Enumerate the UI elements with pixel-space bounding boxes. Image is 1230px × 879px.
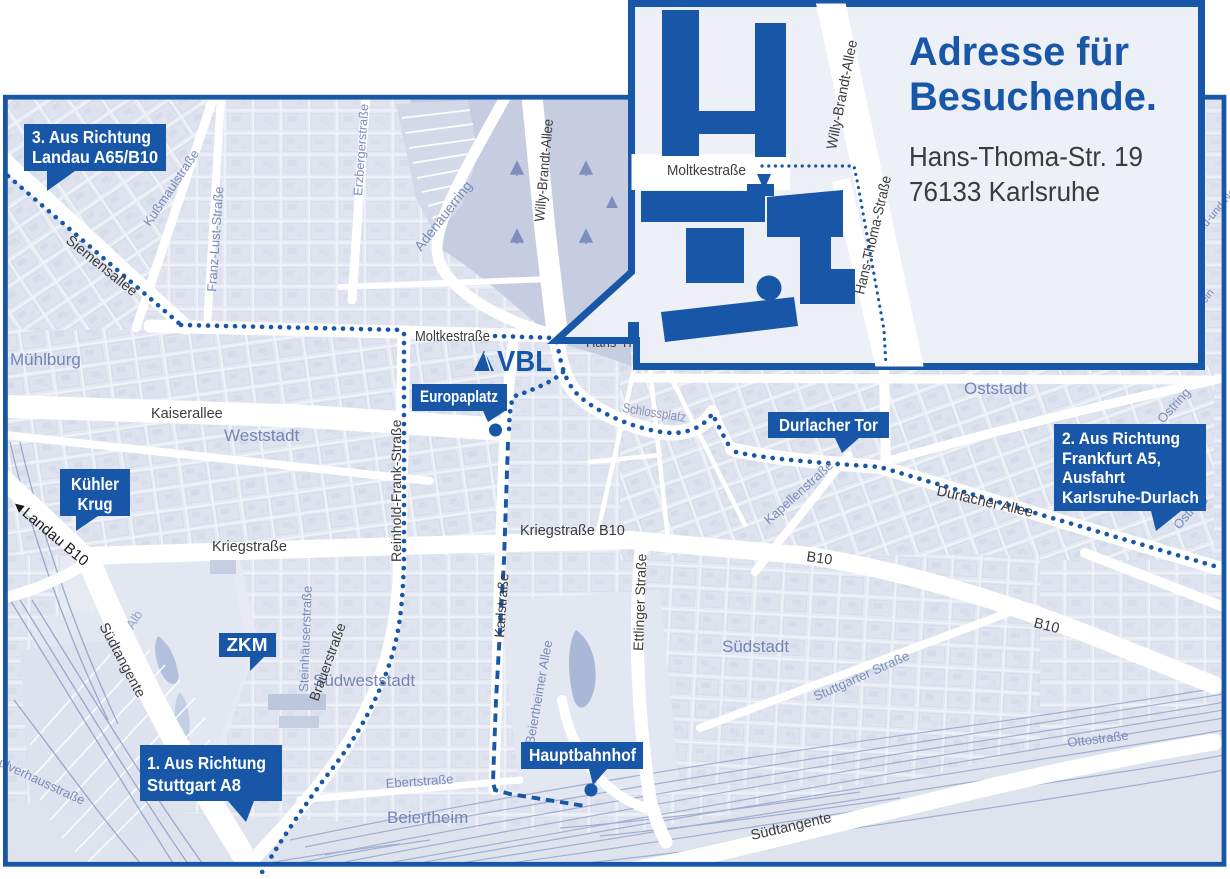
svg-text:ZKM: ZKM xyxy=(227,635,268,655)
svg-text:Stuttgart A8: Stuttgart A8 xyxy=(147,775,241,795)
svg-text:Reinhold-Frank-Straße: Reinhold-Frank-Straße xyxy=(388,419,404,562)
svg-text:Kaiserallee: Kaiserallee xyxy=(151,406,223,422)
svg-text:Südstadt: Südstadt xyxy=(722,637,789,656)
svg-text:Kriegstraße B10: Kriegstraße B10 xyxy=(520,523,625,539)
svg-text:Oststadt: Oststadt xyxy=(964,379,1028,398)
svg-text:Landau A65/B10: Landau A65/B10 xyxy=(32,147,158,167)
svg-text:Kriegstraße: Kriegstraße xyxy=(212,539,287,555)
svg-text:Krug: Krug xyxy=(78,494,113,514)
svg-text:Kühler: Kühler xyxy=(71,474,119,494)
svg-text:Hans-Thoma-Str. 19: Hans-Thoma-Str. 19 xyxy=(909,141,1143,172)
svg-text:3. Aus Richtung: 3. Aus Richtung xyxy=(32,127,151,147)
svg-text:Moltkestraße: Moltkestraße xyxy=(415,329,490,345)
svg-text:Besuchende.: Besuchende. xyxy=(909,75,1157,119)
svg-text:Durlacher Tor: Durlacher Tor xyxy=(779,415,878,435)
svg-text:Beiertheim: Beiertheim xyxy=(387,808,468,827)
svg-text:Europaplatz: Europaplatz xyxy=(420,388,498,406)
svg-text:Weststadt: Weststadt xyxy=(224,426,300,445)
svg-text:Mühlburg: Mühlburg xyxy=(10,350,81,369)
svg-text:Ettlinger Straße: Ettlinger Straße xyxy=(630,553,649,651)
svg-text:VBL: VBL xyxy=(497,346,552,378)
svg-text:Karlsruhe-Durlach: Karlsruhe-Durlach xyxy=(1062,488,1199,507)
svg-text:2. Aus Richtung: 2. Aus Richtung xyxy=(1062,429,1180,448)
svg-text:1. Aus Richtung: 1. Aus Richtung xyxy=(147,753,266,773)
svg-text:Ausfahrt: Ausfahrt xyxy=(1062,468,1125,487)
svg-text:Frankfurt A5,: Frankfurt A5, xyxy=(1062,449,1161,468)
svg-text:Moltkestraße: Moltkestraße xyxy=(667,163,746,179)
svg-text:Adresse für: Adresse für xyxy=(909,30,1129,74)
svg-text:Hauptbahnhof: Hauptbahnhof xyxy=(529,745,636,765)
svg-text:76133 Karlsruhe: 76133 Karlsruhe xyxy=(909,176,1100,207)
